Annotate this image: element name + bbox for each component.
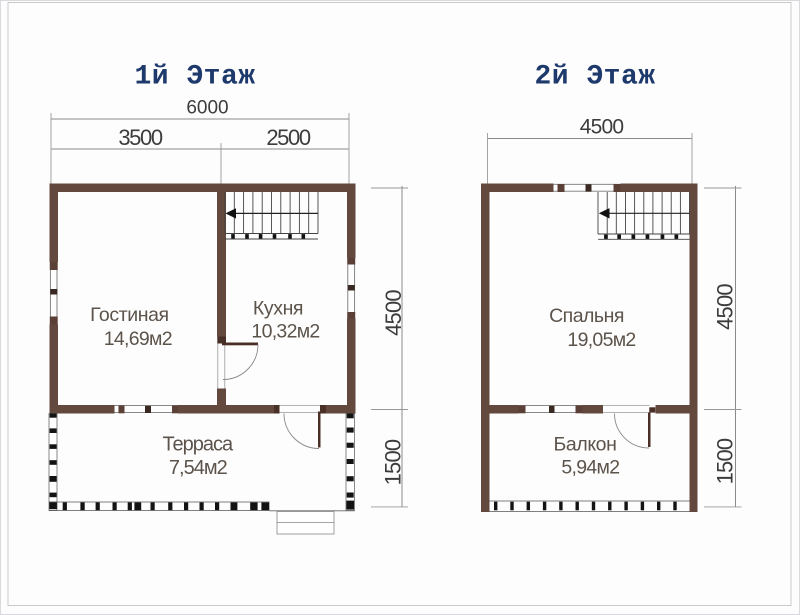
svg-text:1500: 1500 (712, 438, 737, 484)
svg-text:14,69м2: 14,69м2 (104, 328, 172, 350)
svg-text:2500: 2500 (266, 125, 311, 150)
svg-text:Балкон: Балкон (554, 433, 617, 455)
svg-text:5,94м2: 5,94м2 (561, 457, 619, 479)
svg-text:6000: 6000 (186, 98, 228, 119)
svg-text:1500: 1500 (380, 439, 405, 485)
svg-text:2й Этаж: 2й Этаж (534, 62, 655, 93)
svg-text:7,54м2: 7,54м2 (169, 457, 228, 479)
svg-text:Гостиная: Гостиная (90, 304, 169, 326)
svg-text:19,05м2: 19,05м2 (567, 329, 635, 351)
svg-text:Спальня: Спальня (549, 305, 624, 327)
svg-text:4500: 4500 (381, 290, 406, 336)
svg-text:1й Этаж: 1й Этаж (134, 62, 255, 93)
svg-text:4500: 4500 (712, 284, 737, 330)
svg-text:3500: 3500 (118, 125, 163, 150)
svg-text:10,32м2: 10,32м2 (251, 321, 319, 343)
svg-text:Терраса: Терраса (162, 433, 234, 455)
svg-text:4500: 4500 (580, 115, 624, 138)
svg-text:Кухня: Кухня (253, 297, 303, 319)
